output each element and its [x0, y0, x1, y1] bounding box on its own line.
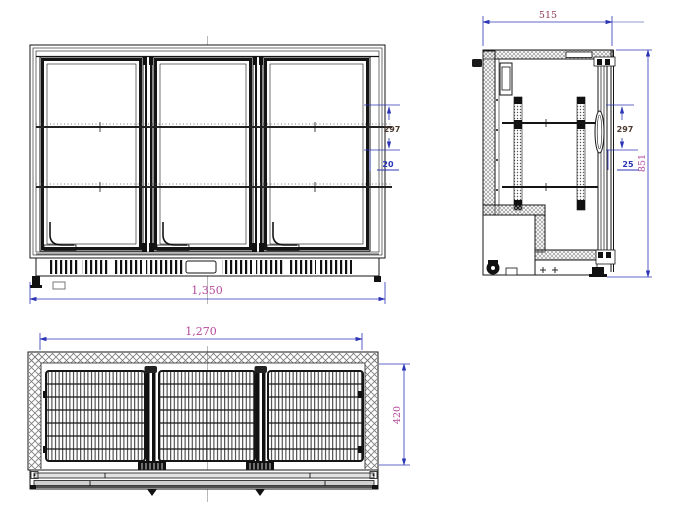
dim-front-width-label: 1,350 — [191, 284, 223, 297]
sliding-track — [30, 470, 378, 489]
evaporator-box — [500, 63, 512, 95]
dim-side-shelf-gap-label: 25 — [622, 160, 634, 169]
bottom-ticks — [540, 267, 558, 273]
dim-side-depth: 515 — [483, 10, 644, 46]
logo-badge — [186, 261, 216, 273]
dim-top-width-label: 1,270 — [185, 325, 217, 338]
shelf-rails — [514, 97, 585, 210]
dim-side-depth-label: 515 — [539, 10, 557, 21]
technical-drawing: 1,350 297 20 — [0, 0, 680, 517]
leveling-foot — [589, 267, 607, 277]
dim-front-shelf-gap-label: 20 — [382, 160, 394, 169]
wire-shelf-left — [46, 371, 145, 461]
dim-side-shelf-spacing-label: 297 — [617, 125, 634, 134]
dim-front-shelf-spacing-label: 297 — [384, 125, 401, 134]
louver-grille — [36, 258, 379, 276]
back-insulation — [483, 51, 495, 215]
side-door-handle — [595, 111, 604, 153]
side-view: 515 851 297 25 — [472, 10, 652, 277]
hinge-knob — [472, 59, 482, 67]
top-insulation — [483, 50, 613, 59]
interior-lamp — [566, 52, 592, 58]
dim-top-depth: 420 — [379, 364, 410, 465]
sliding-door-profile — [594, 50, 615, 272]
dim-top-width: 1,270 — [40, 325, 362, 350]
caster-wheel — [487, 260, 500, 275]
wire-shelf-middle — [159, 371, 255, 461]
cabinet-body — [30, 45, 385, 258]
dim-top-depth-label: 420 — [392, 406, 403, 424]
drain-outlet — [506, 268, 517, 275]
wire-shelf-right — [268, 371, 363, 461]
drawing-canvas: 1,350 297 20 — [0, 0, 680, 517]
front-view: 1,350 297 20 — [30, 36, 400, 304]
dim-side-height-label: 851 — [637, 154, 648, 172]
mounting-holes — [496, 99, 498, 191]
top-view: 1,270 420 — [28, 325, 410, 502]
